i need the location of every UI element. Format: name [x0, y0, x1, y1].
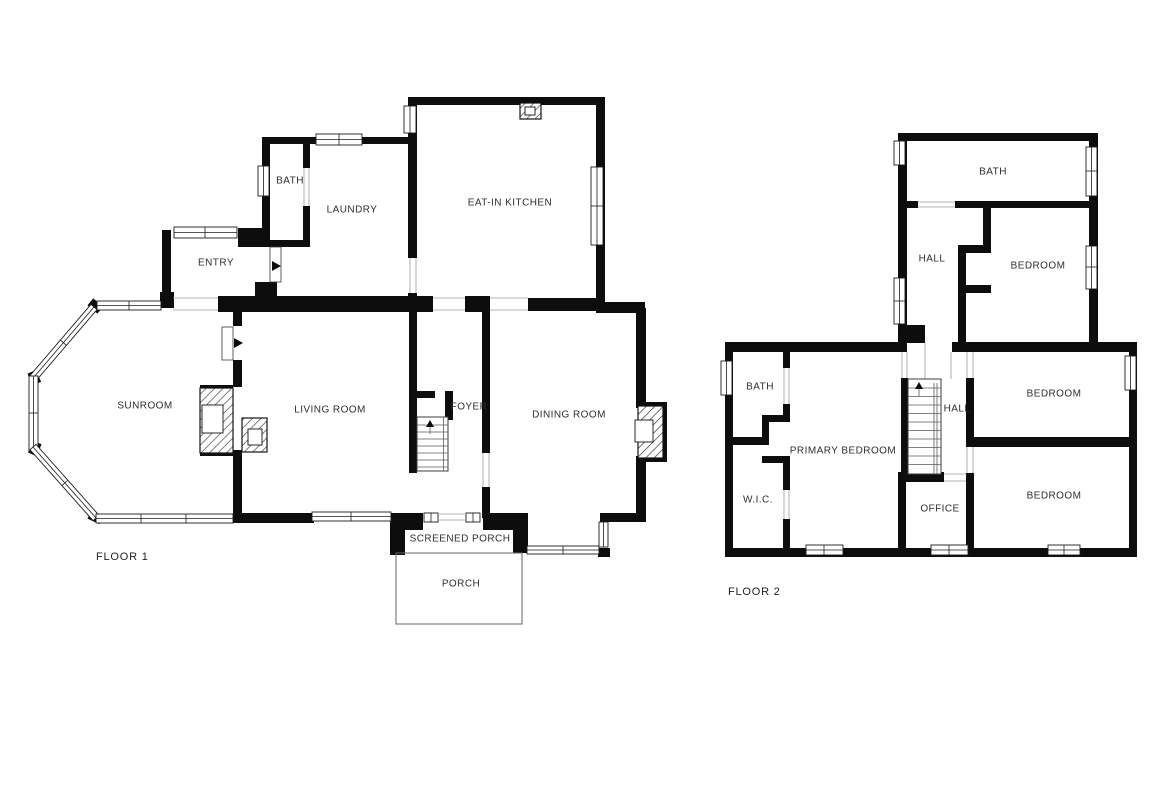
floor1-windows	[29, 106, 608, 554]
room-label-foyer: FOYER	[451, 402, 488, 413]
room-label-laundry: LAUNDRY	[327, 205, 378, 216]
room-label-wic: W.I.C.	[743, 495, 773, 506]
room-label-entry: ENTRY	[198, 258, 234, 269]
room-label-hall-upper: HALL	[919, 254, 946, 265]
room-label-sunroom: SUNROOM	[117, 401, 172, 412]
room-label-living-room: LIVING ROOM	[294, 405, 366, 416]
room-label-bath-f2-lower: BATH	[746, 382, 774, 393]
room-label-hall-lower: HALL	[944, 404, 971, 415]
room-label-bedroom-upper: BEDROOM	[1011, 261, 1066, 272]
floor1-title: FLOOR 1	[96, 551, 149, 563]
floor2-stairs	[908, 379, 941, 474]
room-label-porch: PORCH	[442, 579, 480, 590]
floor2-opening-guides	[784, 202, 973, 519]
floor-plan-page: BATH LAUNDRY EAT-IN KITCHEN ENTRY SUNROO…	[0, 0, 1170, 785]
living-room-fireplace	[200, 388, 267, 453]
room-label-eat-in-kitchen: EAT-IN KITCHEN	[468, 198, 552, 209]
floor2-title: FLOOR 2	[728, 586, 781, 598]
room-label-bedroom-se: BEDROOM	[1027, 491, 1082, 502]
floor-plan-drawing	[0, 0, 1170, 785]
room-label-bath-f1: BATH	[276, 176, 304, 187]
foyer-stairs	[417, 417, 448, 471]
room-label-bath-f2-upper: BATH	[979, 167, 1007, 178]
floor1-walls	[160, 97, 667, 557]
room-label-primary-bedroom: PRIMARY BEDROOM	[790, 446, 896, 457]
room-label-bedroom-ne: BEDROOM	[1027, 389, 1082, 400]
living-room-door	[222, 327, 243, 360]
entry-door	[270, 247, 281, 282]
kitchen-chimney	[520, 103, 541, 119]
dining-room-fireplace	[635, 406, 663, 458]
right-arrow-icon	[234, 338, 243, 348]
room-label-office: OFFICE	[920, 504, 959, 515]
room-label-dining-room: DINING ROOM	[532, 410, 606, 421]
room-label-screened-porch: SCREENED PORCH	[410, 534, 511, 545]
sunroom-bay-corners	[28, 298, 104, 524]
